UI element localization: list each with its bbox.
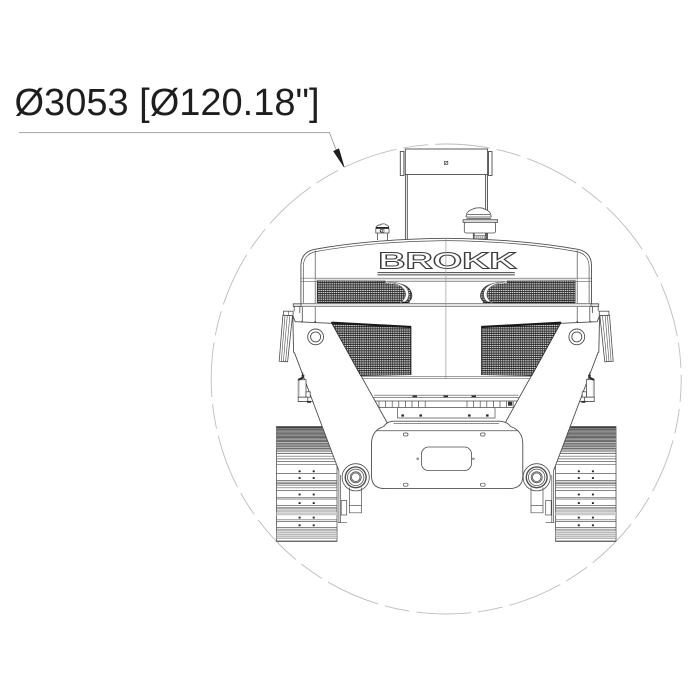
svg-text:BROKK: BROKK <box>378 248 517 274</box>
svg-text:Ø3053 [Ø120.18"]: Ø3053 [Ø120.18"] <box>15 82 320 124</box>
